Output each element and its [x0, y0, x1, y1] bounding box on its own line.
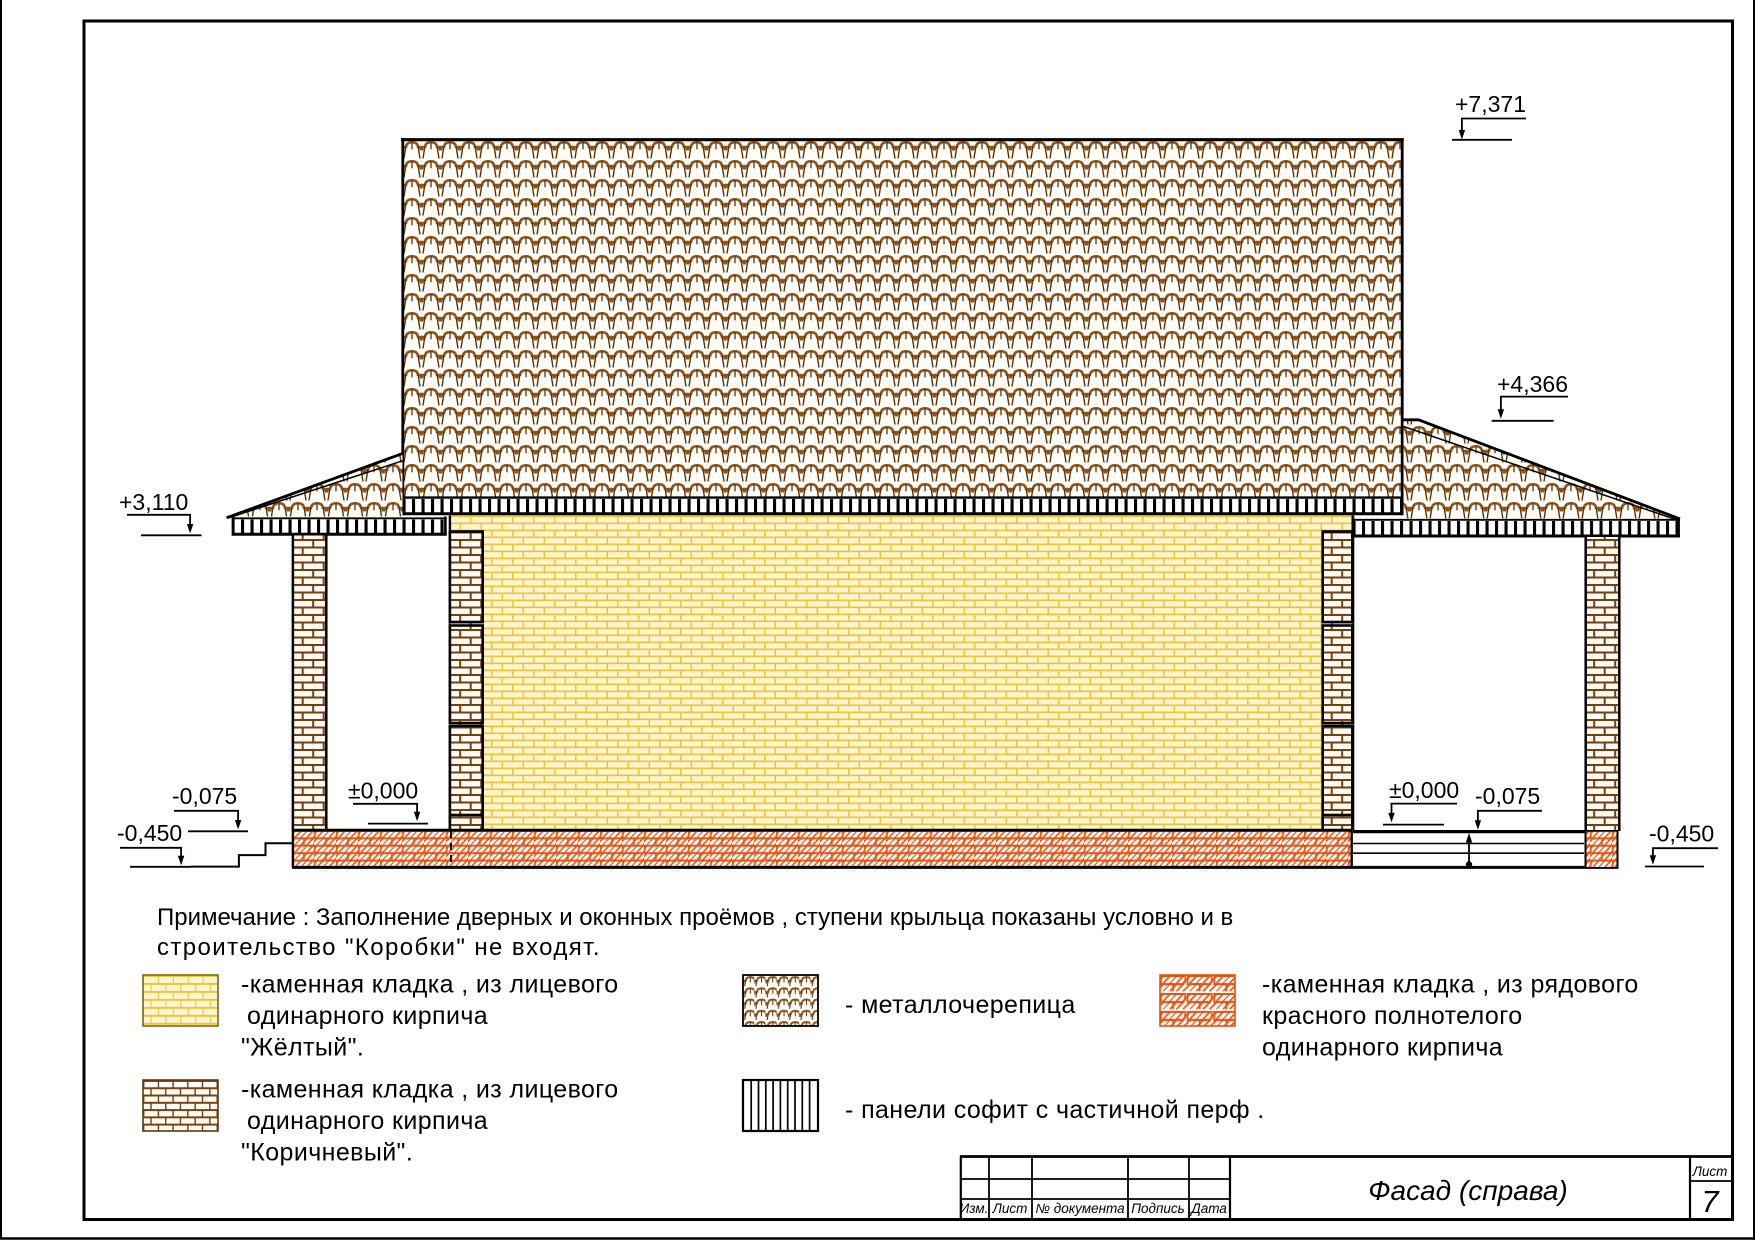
svg-text:Подпись: Подпись	[1131, 1201, 1185, 1216]
svg-text:"Жёлтый".: "Жёлтый".	[241, 1034, 364, 1062]
svg-text:Дата: Дата	[1189, 1201, 1227, 1216]
svg-text:Примечание : Заполнение дверны: Примечание : Заполнение дверных и оконны…	[157, 904, 1233, 931]
svg-text:Фасад (справа): Фасад (справа)	[1368, 1175, 1567, 1206]
svg-text:-0,450: -0,450	[1649, 821, 1714, 847]
svg-text:строительство "Коробки" не в: строительство "Коробки" не входят.	[157, 934, 601, 961]
svg-text:- металлочерепица: - металлочерепица	[845, 991, 1076, 1019]
svg-text:+4,366: +4,366	[1497, 371, 1568, 397]
svg-text:+3,110: +3,110	[119, 489, 188, 515]
svg-text:красного полнотелого: красного полнотелого	[1262, 1002, 1523, 1030]
svg-text:- панели софит с частичной пер: - панели софит с частичной перф .	[845, 1096, 1265, 1124]
svg-text:-каменная кладка , из лицевого: -каменная кладка , из лицевого	[241, 971, 619, 999]
svg-text:одинарного кирпича: одинарного кирпича	[1262, 1034, 1503, 1062]
svg-text:Лист: Лист	[1692, 1164, 1728, 1179]
svg-text:-каменная кладка , из рядового: -каменная кладка , из рядового	[1262, 971, 1639, 999]
svg-text:одинарного кирпича: одинарного кирпича	[247, 1107, 488, 1135]
svg-text:+7,371: +7,371	[1455, 91, 1526, 117]
svg-text:Лист: Лист	[992, 1201, 1028, 1216]
svg-text:-0,075: -0,075	[1475, 783, 1540, 809]
svg-text:"Коричневый".: "Коричневый".	[241, 1139, 413, 1167]
svg-text:№ документа: № документа	[1035, 1201, 1125, 1216]
svg-text:-0,450: -0,450	[117, 820, 182, 846]
svg-text:±0,000: ±0,000	[348, 778, 418, 804]
svg-text:-0,075: -0,075	[172, 783, 237, 809]
svg-text:одинарного кирпича: одинарного кирпича	[247, 1002, 488, 1030]
svg-text:-каменная кладка , из лицевого: -каменная кладка , из лицевого	[241, 1076, 619, 1104]
svg-text:7: 7	[1701, 1184, 1720, 1219]
svg-text:±0,000: ±0,000	[1389, 777, 1459, 803]
svg-text:Изм.: Изм.	[960, 1201, 989, 1216]
